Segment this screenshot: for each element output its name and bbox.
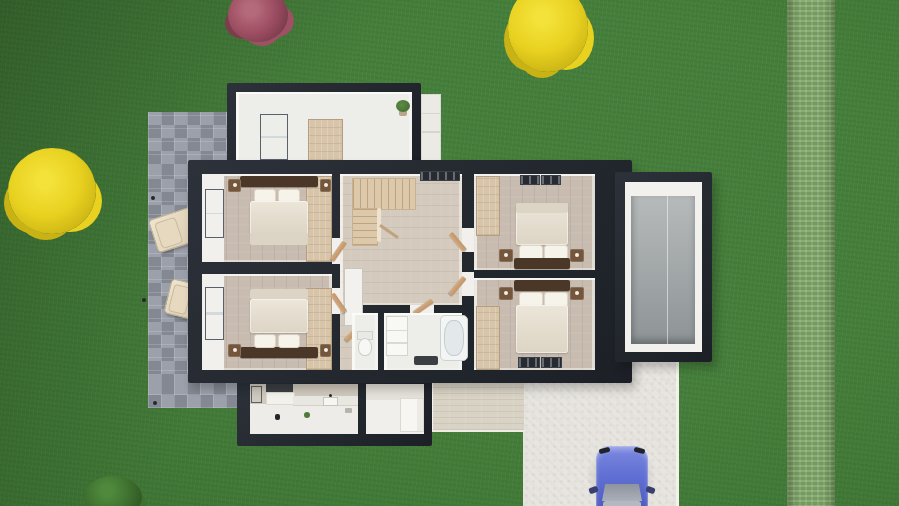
bedroom-br-wardrobe bbox=[476, 306, 500, 370]
utility-window bbox=[260, 114, 288, 160]
landing-vent-grille bbox=[420, 171, 460, 181]
staircase-upper-flight bbox=[352, 178, 416, 210]
bedroom-br-nightstand bbox=[570, 287, 584, 300]
yellow-bush bbox=[8, 148, 96, 234]
bedroom-tl-bed bbox=[250, 201, 308, 235]
pantry-cabinet bbox=[400, 398, 424, 432]
bedroom-br-headboard bbox=[514, 280, 570, 291]
bedroom-tl-nightstand bbox=[228, 179, 241, 192]
bedroom-tr-vent bbox=[520, 175, 540, 185]
staircase-lower-flight bbox=[352, 208, 378, 246]
bathtub bbox=[440, 315, 468, 361]
kitchen-items bbox=[345, 408, 352, 413]
kitchen-plant bbox=[304, 412, 310, 418]
kitchen-bin bbox=[275, 414, 280, 420]
hedge bbox=[787, 0, 835, 506]
bathroom-vanity bbox=[386, 316, 408, 356]
annex-porch bbox=[421, 94, 441, 166]
bedroom-tr-nightstand bbox=[570, 249, 584, 262]
bedroom-bl-pillow bbox=[254, 334, 276, 348]
bedroom-br-nightstand bbox=[499, 287, 513, 300]
utility-room bbox=[236, 92, 412, 162]
bedroom-bl-headboard bbox=[240, 347, 318, 358]
car bbox=[596, 446, 648, 506]
patio-pavers-bottom bbox=[148, 382, 250, 408]
bedroom-tr-nightstand bbox=[499, 249, 513, 262]
kitchen-window bbox=[251, 386, 262, 403]
bedroom-tr-wardrobe bbox=[476, 176, 500, 236]
bedroom-bl-nightstand bbox=[228, 344, 241, 357]
red-bush bbox=[228, 0, 288, 42]
bedroom-tr-blanket bbox=[516, 203, 568, 213]
garden-light bbox=[151, 196, 155, 200]
bedroom-bl-bed bbox=[250, 299, 308, 333]
bath-mat bbox=[414, 356, 438, 365]
kitchen-faucet bbox=[329, 394, 332, 397]
green-bush bbox=[84, 476, 142, 506]
garden-scene bbox=[0, 0, 899, 506]
garden-light bbox=[153, 401, 157, 405]
bedroom-bl-nightstand bbox=[320, 344, 331, 357]
bedroom-bl-blanket bbox=[250, 289, 308, 299]
garden-light bbox=[142, 298, 146, 302]
bedroom-br-bed bbox=[516, 305, 568, 353]
car-roof bbox=[603, 501, 641, 506]
garage-floor bbox=[631, 196, 695, 344]
bedroom-tr-headboard bbox=[514, 258, 570, 269]
driveway-curb bbox=[676, 362, 679, 506]
bedroom-tl-window bbox=[205, 189, 224, 238]
bedroom-br-vent bbox=[518, 357, 540, 368]
car-windshield bbox=[602, 484, 642, 501]
utility-plant bbox=[396, 100, 410, 112]
toilet-bowl bbox=[358, 338, 372, 356]
bedroom-br-vent bbox=[541, 357, 562, 368]
kitchen-cabinet bbox=[266, 392, 295, 405]
pantry bbox=[366, 384, 424, 434]
car-headlight-left bbox=[599, 447, 611, 455]
utility-shelving-unit bbox=[308, 119, 343, 161]
bedroom-tl-blanket bbox=[250, 233, 308, 245]
kitchen-worktop bbox=[266, 384, 293, 392]
bedroom-tr-vent bbox=[541, 175, 561, 185]
door-opening bbox=[462, 272, 474, 296]
kitchen bbox=[250, 384, 358, 434]
kitchen-sink bbox=[323, 397, 338, 406]
bedroom-bl-window bbox=[205, 287, 224, 340]
bedroom-tl-nightstand bbox=[320, 179, 331, 192]
yellow-tree bbox=[508, 0, 588, 72]
bedroom-bl-pillow bbox=[278, 334, 300, 348]
garage-wall-seam bbox=[667, 196, 668, 344]
bedroom-tl-headboard bbox=[240, 176, 318, 187]
terrace bbox=[431, 380, 524, 432]
